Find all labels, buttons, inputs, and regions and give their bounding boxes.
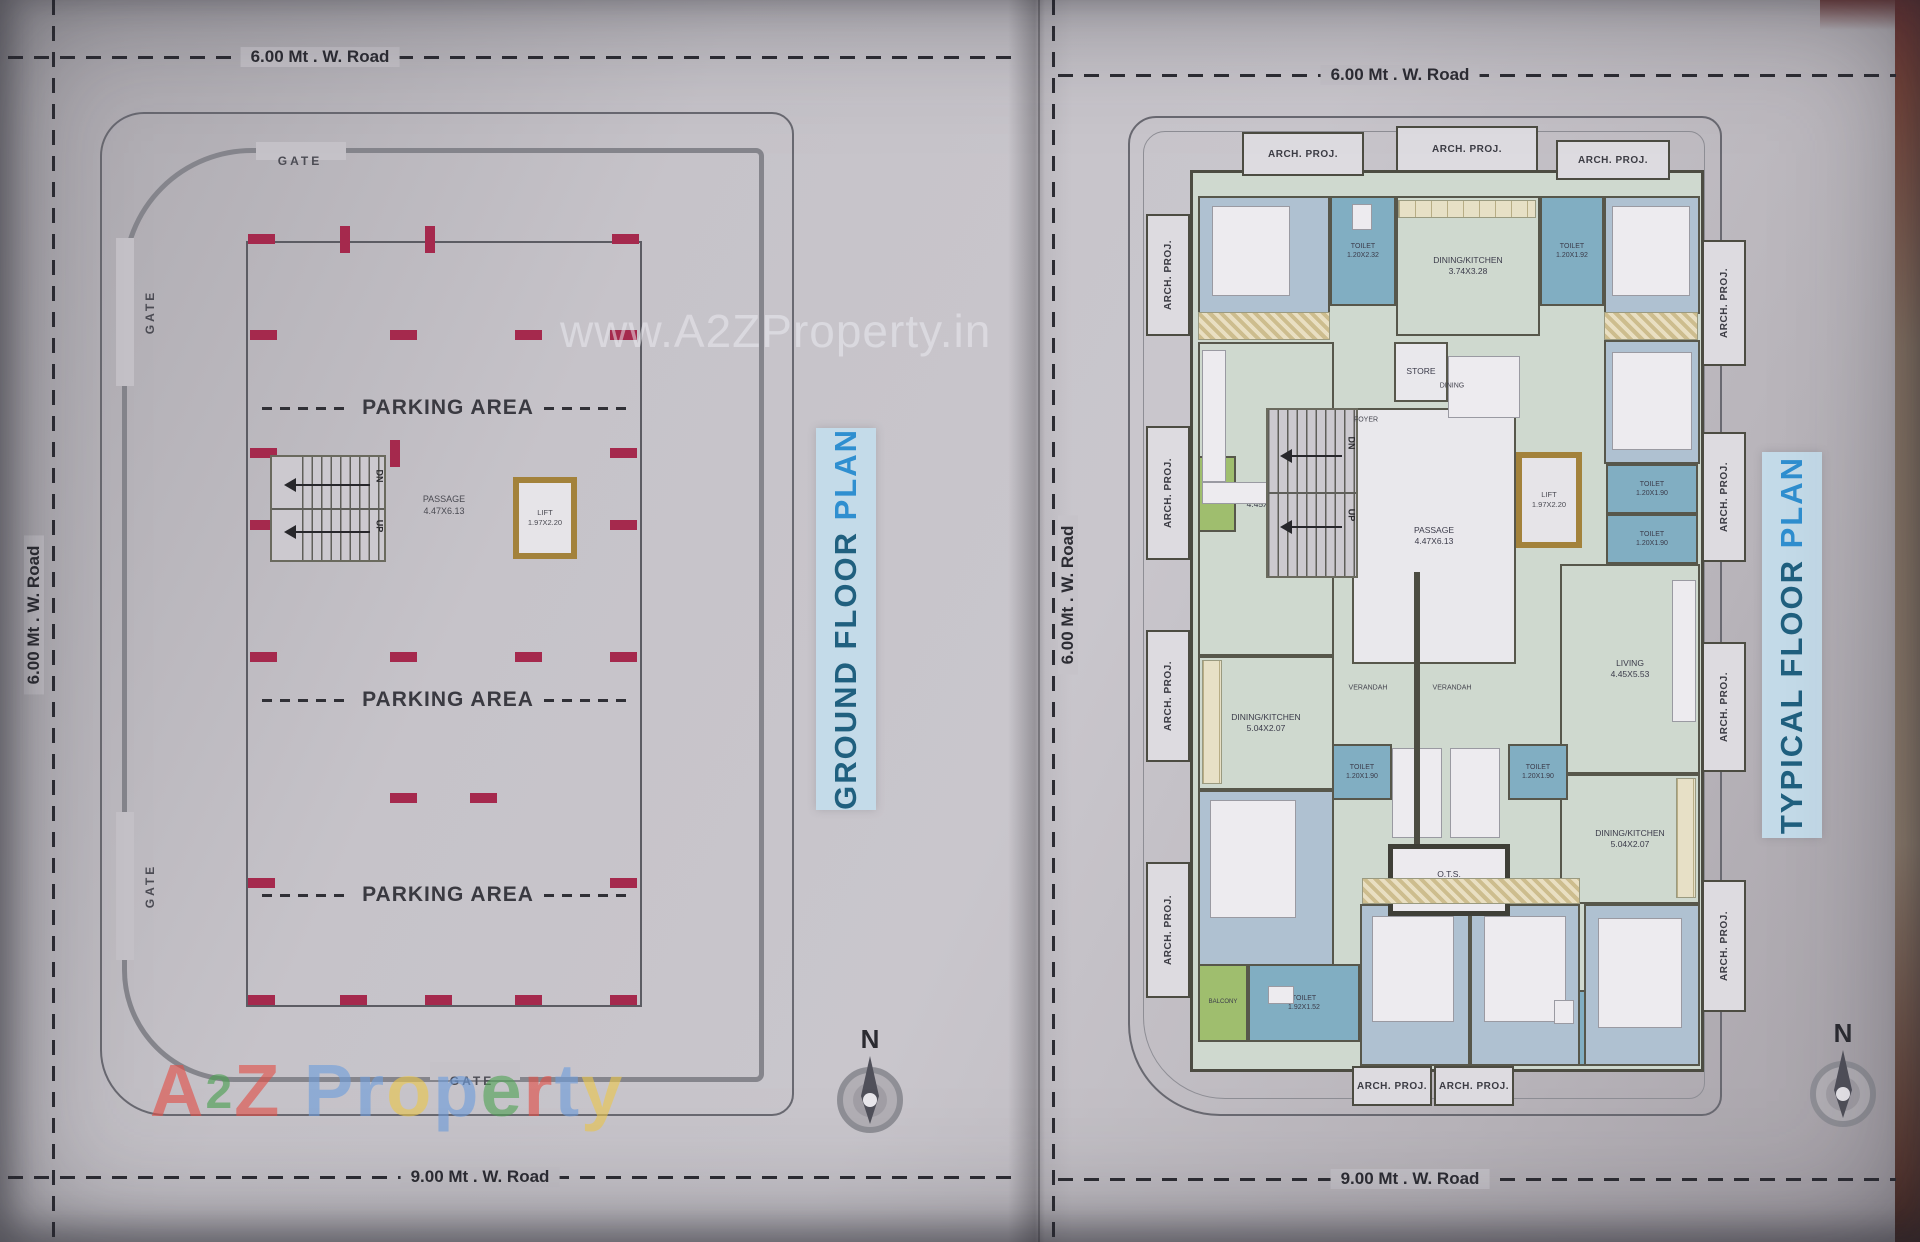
road-label-tf-top: 6.00 Mt . W. Road (1321, 65, 1480, 85)
arch-proj-label: ARCH. PROJ. (1163, 240, 1174, 310)
tf-title-band: TYPICAL FLOOR PLAN (1762, 452, 1822, 838)
brand-letter: r (524, 1049, 555, 1132)
parking-dash-left (262, 407, 352, 410)
room-toilet_c2: TOILET1.20X1.90 (1508, 744, 1568, 800)
gf-staircase: DN UP (270, 455, 386, 562)
room-dim: 1.20X1.92 (1556, 251, 1588, 260)
arch-proj-box: ARCH. PROJ. (1146, 862, 1190, 998)
stair-rail-dn (286, 484, 370, 486)
furniture-block (1352, 204, 1372, 230)
rcc-column (610, 995, 637, 1005)
rcc-column (610, 652, 637, 662)
brand-letter: o (386, 1049, 433, 1132)
parking-dash-left (262, 699, 352, 702)
room-balcony_bl: BALCONY (1198, 964, 1248, 1042)
watermark-brand: A2Z Property (150, 1048, 624, 1133)
brand-letter: A (150, 1049, 205, 1132)
room-passage: PASSAGE4.47X6.13 (1352, 408, 1516, 664)
gf-passage-label: PASSAGE 4.47X6.13 (423, 493, 465, 517)
tf-lift: LIFT 1.97X2.20 (1516, 452, 1582, 548)
road-label-tf-bottom: 9.00 Mt . W. Road (1331, 1169, 1490, 1189)
room-name: DINING/KITCHEN (1231, 712, 1300, 723)
stair-rail-dn (1282, 455, 1342, 457)
room-name: TOILET (1640, 530, 1664, 539)
parking-dash-right (544, 407, 634, 410)
room-dim: 1.92X1.52 (1288, 1003, 1320, 1012)
watermark-center: www.A2ZProperty.in (560, 304, 991, 358)
room-toilet_bl: TOILET1.92X1.52 (1248, 964, 1360, 1042)
furniture-block (1612, 352, 1692, 450)
rcc-column (250, 652, 277, 662)
rcc-column (248, 234, 275, 244)
furniture-block (1612, 206, 1690, 296)
road-line-left (52, 0, 55, 1242)
arch-proj-box: ARCH. PROJ. (1702, 432, 1746, 562)
passage-name: PASSAGE (423, 493, 465, 505)
arch-proj-label: ARCH. PROJ. (1719, 911, 1730, 981)
room-toilet_tr: TOILET1.20X1.92 (1540, 196, 1604, 306)
room-dim: 1.20X1.90 (1636, 489, 1668, 498)
room-toilet_r2: TOILET1.20X1.90 (1606, 514, 1698, 564)
photo-corner-shadow (1820, 0, 1900, 30)
rcc-column (612, 234, 639, 244)
arch-proj-box: ARCH. PROJ. (1146, 630, 1190, 762)
rcc-column (390, 793, 417, 803)
arch-proj-label: ARCH. PROJ. (1719, 672, 1730, 742)
stair-rail-up (1282, 526, 1342, 528)
rcc-column (515, 995, 542, 1005)
arch-proj-box: ARCH. PROJ. (1396, 126, 1538, 172)
road-line-top-left (8, 56, 1012, 59)
brand-letter: e (481, 1049, 524, 1132)
room-name: TOILET (1350, 763, 1374, 772)
gf-parking-area-2: PARKING AREA (262, 688, 634, 712)
tf-staircase: DN UP (1266, 408, 1358, 578)
north-letter: N (825, 1026, 915, 1052)
room-name: TOILET (1640, 480, 1664, 489)
furniture-block (1672, 580, 1696, 722)
brand-letter: p (433, 1049, 480, 1132)
rcc-column (610, 520, 637, 530)
gf-gate-gap-left-lower (116, 812, 134, 960)
rcc-column (610, 448, 637, 458)
brand-letter (281, 1049, 304, 1132)
road-label-gf-left: 6.00 Mt . W. Road (24, 536, 44, 695)
stair-up-label: UP (375, 520, 385, 533)
kitchen-counter (1398, 200, 1536, 218)
brand-letter: P (304, 1049, 355, 1132)
rcc-column (390, 652, 417, 662)
compass-icon (825, 1052, 915, 1136)
lift-name: LIFT (537, 508, 552, 518)
lift-dim: 1.97X2.20 (1532, 500, 1566, 510)
room-name: TOILET (1351, 242, 1375, 251)
rcc-column (248, 995, 275, 1005)
room-dim: 1.20X1.90 (1346, 772, 1378, 781)
furniture-block (1554, 1000, 1574, 1024)
tf-north-arrow-icon: N (1798, 1020, 1888, 1132)
room-toilet_r1: TOILET1.20X1.90 (1606, 464, 1698, 514)
room-dim: 1.20X1.90 (1636, 539, 1668, 548)
room-name: DINING/KITCHEN (1595, 828, 1664, 839)
gf-gate-top-label: GATE (278, 154, 322, 168)
gf-gate-left-upper-label: GATE (143, 290, 157, 334)
furniture-block (1210, 800, 1296, 918)
brand-letter: Z (234, 1049, 281, 1132)
arch-proj-box: ARCH. PROJ. (1146, 426, 1190, 560)
gf-title-accent: PLAN (828, 428, 863, 520)
rcc-column (515, 330, 542, 340)
arch-proj-label: ARCH. PROJ. (1578, 155, 1648, 166)
parking-area-label: PARKING AREA (362, 396, 534, 420)
parking-dash-right (544, 699, 634, 702)
road-label-gf-bottom: 9.00 Mt . W. Road (401, 1167, 560, 1187)
rcc-column (425, 226, 435, 253)
arch-proj-box: ARCH. PROJ. (1702, 880, 1746, 1012)
furniture-block (1450, 748, 1500, 838)
compass-icon (1798, 1046, 1888, 1130)
rcc-column (425, 995, 452, 1005)
room-name: DINING/KITCHEN (1433, 255, 1502, 266)
parking-dash-left (262, 894, 352, 897)
arch-proj-box: ARCH. PROJ. (1242, 132, 1364, 176)
tf-title-accent: PLAN (1774, 456, 1809, 548)
brochure-photo: 6.00 Mt . W. Road 6.00 Mt . W. Road 9.00… (0, 0, 1920, 1242)
rcc-column (515, 652, 542, 662)
stair-dn-label: DN (375, 470, 385, 483)
arch-proj-label: ARCH. PROJ. (1268, 149, 1338, 160)
arch-proj-box: ARCH. PROJ. (1702, 642, 1746, 772)
parking-dash-right (544, 894, 634, 897)
gf-north-arrow-icon: N (825, 1026, 915, 1138)
furniture-block (1212, 206, 1290, 296)
room-name: TOILET (1526, 763, 1550, 772)
tf-spine-wall (1414, 572, 1420, 844)
road-label-gf-top: 6.00 Mt . W. Road (241, 47, 400, 67)
rcc-column (250, 330, 277, 340)
arch-proj-label: ARCH. PROJ. (1439, 1081, 1509, 1092)
stair-rail-up (286, 531, 370, 533)
room-dim: 4.45X5.53 (1611, 669, 1650, 680)
brand-letter: y (581, 1049, 624, 1132)
arch-proj-box: ARCH. PROJ. (1702, 240, 1746, 366)
gf-title-main: GROUND FLOOR (828, 520, 863, 810)
room-name: LIVING (1616, 658, 1644, 669)
stair-dn-label: DN (1347, 437, 1357, 450)
arch-proj-box: ARCH. PROJ. (1352, 1066, 1432, 1106)
label-verandah2: VERANDAH (1433, 685, 1472, 692)
furniture-block (1268, 986, 1294, 1004)
room-store: STORE (1394, 342, 1448, 402)
room-dim: 1.20X1.90 (1522, 772, 1554, 781)
arch-proj-label: ARCH. PROJ. (1432, 144, 1502, 155)
gf-lift: LIFT 1.97X2.20 (513, 477, 577, 559)
gf-title: GROUND FLOOR PLAN (828, 428, 864, 810)
rcc-column (390, 330, 417, 340)
parking-area-label: PARKING AREA (362, 883, 534, 907)
wardrobe-hatch (1362, 878, 1580, 904)
kitchen-counter (1202, 660, 1222, 784)
lift-dim: 1.97X2.20 (528, 518, 562, 528)
stair-landing-line (272, 508, 384, 510)
furniture-block (1598, 918, 1682, 1028)
brand-letter: t (554, 1049, 581, 1132)
rcc-column (340, 995, 367, 1005)
photo-right-edge (1895, 0, 1920, 1242)
brand-letter: r (355, 1049, 386, 1132)
arch-proj-box: ARCH. PROJ. (1556, 140, 1670, 180)
tf-title: TYPICAL FLOOR PLAN (1774, 456, 1810, 834)
rcc-column (340, 226, 350, 253)
wardrobe-hatch (1604, 312, 1698, 340)
room-toilet_c1: TOILET1.20X1.90 (1332, 744, 1392, 800)
arch-proj-label: ARCH. PROJ. (1163, 661, 1174, 731)
gf-title-band: GROUND FLOOR PLAN (816, 428, 876, 810)
room-name: TOILET (1560, 242, 1584, 251)
rcc-column (470, 793, 497, 803)
room-name: BALCONY (1209, 999, 1238, 1007)
room-dim: 4.47X6.13 (1415, 536, 1454, 547)
arch-proj-label: ARCH. PROJ. (1357, 1081, 1427, 1092)
room-dim: 3.74X3.28 (1449, 266, 1488, 277)
wardrobe-hatch (1198, 312, 1330, 340)
label-foyer: FOYER (1354, 417, 1378, 424)
room-dim: 5.04X2.07 (1247, 723, 1286, 734)
room-name: STORE (1406, 366, 1435, 377)
room-name: PASSAGE (1414, 525, 1454, 536)
passage-dim: 4.47X6.13 (423, 505, 465, 517)
gf-gate-left-lower-label: GATE (143, 864, 157, 908)
north-letter: N (1798, 1020, 1888, 1046)
room-name: TOILET (1292, 994, 1316, 1003)
label-dining_c: DINING (1440, 383, 1465, 390)
gf-gate-gap-left-upper (116, 238, 134, 386)
room-dim: 1.20X2.32 (1347, 251, 1379, 260)
gf-parking-area-1: PARKING AREA (262, 396, 634, 420)
road-label-tf-left: 6.00 Mt . W. Road (1058, 516, 1078, 675)
stair-landing-line (1268, 492, 1356, 494)
kitchen-counter (1676, 778, 1696, 898)
arch-proj-label: ARCH. PROJ. (1163, 895, 1174, 965)
page-fold-line (1038, 0, 1040, 1242)
room-dim: 5.04X2.07 (1611, 839, 1650, 850)
arch-proj-box: ARCH. PROJ. (1146, 214, 1190, 336)
furniture-block (1372, 916, 1454, 1022)
lift-name: LIFT (1541, 490, 1556, 500)
arch-proj-label: ARCH. PROJ. (1163, 458, 1174, 528)
arch-proj-label: ARCH. PROJ. (1719, 268, 1730, 338)
parking-area-label: PARKING AREA (362, 688, 534, 712)
furniture-block (1202, 350, 1226, 482)
arch-proj-box: ARCH. PROJ. (1434, 1066, 1514, 1106)
label-verandah1: VERANDAH (1349, 685, 1388, 692)
arch-proj-label: ARCH. PROJ. (1719, 462, 1730, 532)
stair-up-label: UP (1347, 508, 1357, 521)
road-line-right-page (1052, 0, 1055, 1242)
brand-letter: 2 (205, 1066, 234, 1119)
tf-title-main: TYPICAL FLOOR (1774, 548, 1809, 834)
rcc-column (390, 440, 400, 467)
gf-parking-area-3: PARKING AREA (262, 883, 634, 907)
